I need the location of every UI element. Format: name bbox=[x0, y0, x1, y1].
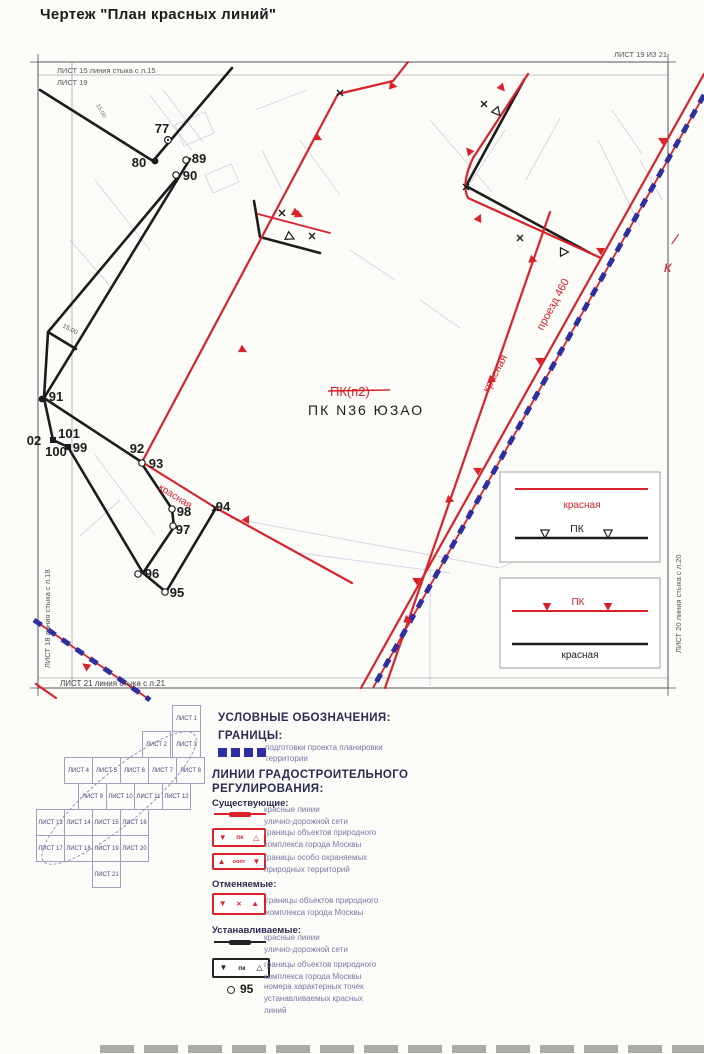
legend-existing-item2-line1: границы особо охраняемых bbox=[264, 852, 367, 863]
sheet-index-cell: ЛИСТ 1 bbox=[172, 705, 201, 732]
legend-borders-item-line1: подготовки проекта планировки bbox=[265, 742, 383, 753]
legend-existing-item2-line2: природных территорий bbox=[264, 864, 350, 875]
legend-established-item2-line2: устанавливаемых красных bbox=[264, 993, 363, 1004]
sheet-reference: ЛИСТ 19 ИЗ 21 bbox=[614, 50, 667, 59]
point-label-92: 92 bbox=[130, 441, 144, 456]
legend-lines-title-2: РЕГУЛИРОВАНИЯ: bbox=[212, 783, 324, 795]
legend-established-item0-line2: улично-дорожной сети bbox=[264, 944, 348, 955]
legend-borders-item-line2: территории bbox=[265, 753, 308, 764]
point-label-93: 93 bbox=[149, 456, 163, 471]
point-label-94: 94 bbox=[216, 499, 231, 514]
triangle-up-icon: ▲ bbox=[251, 900, 259, 908]
sheet-index-cell: ЛИСТ 20 bbox=[120, 835, 149, 862]
edge-letter-k: к bbox=[664, 259, 673, 276]
triangle-up-outline-icon: △ bbox=[256, 964, 262, 972]
red-street-line-icon bbox=[214, 810, 266, 818]
legend-borders-title: ГРАНИЦЫ: bbox=[218, 730, 283, 742]
blue-dash-icon bbox=[244, 748, 253, 757]
oopt-symbol-text: оопт bbox=[233, 859, 246, 865]
point-label-99: 99 bbox=[73, 440, 87, 455]
legend-existing-item0-line2: улично-дорожной сети bbox=[264, 816, 348, 827]
point-label-102: 02 bbox=[27, 433, 41, 448]
legend-existing-item1-line2: комплекса города Москвы bbox=[264, 839, 361, 850]
pk-boundary-red-icon: ▼ пк △ bbox=[212, 828, 266, 847]
point-label-101: 101 bbox=[58, 426, 80, 441]
inset-legend-box-1: красная ПК bbox=[500, 472, 660, 562]
sheet-index-cell: ЛИСТ 4 bbox=[64, 757, 93, 784]
blue-dash-icon bbox=[218, 748, 227, 757]
legend-cancelled-title: Отменяемые: bbox=[212, 879, 276, 890]
inset-box2-black-label: красная bbox=[562, 650, 599, 661]
legend-existing-item1-line1: границы объектов природного bbox=[264, 827, 376, 838]
point-label-95: 95 bbox=[170, 585, 184, 600]
point-label-100: 100 bbox=[45, 444, 67, 459]
oopt-boundary-red-icon: ▲ оопт ▼ bbox=[212, 853, 266, 870]
point-label-80: 80 bbox=[132, 155, 146, 170]
edge-label-left: ЛИСТ 18 линия стыка с л.18 bbox=[43, 569, 52, 668]
edge-label-bottom: ЛИСТ 21 линия стыка с л.21 bbox=[60, 679, 166, 688]
point-number-labels: 77 80 89 90 91 92 93 94 95 96 97 98 99 1… bbox=[27, 121, 231, 600]
triangle-down-icon: ▼ bbox=[252, 858, 260, 866]
cancel-cross-icon: ✕ bbox=[236, 900, 241, 908]
triangle-up-outline-icon: △ bbox=[253, 834, 259, 842]
point-number-sample: 95 bbox=[240, 982, 253, 996]
pk-symbol-text: пк bbox=[238, 965, 245, 972]
legend-established-item0-line1: красные линии bbox=[264, 932, 320, 943]
edge-label-top-2: ЛИСТ 19 bbox=[57, 78, 88, 87]
edge-label-right: ЛИСТ 20 линия стыка с л.20 bbox=[674, 554, 683, 653]
black-street-line-icon bbox=[214, 938, 266, 946]
triangle-down-icon: ▼ bbox=[219, 964, 227, 972]
point-number-circle-icon bbox=[227, 986, 235, 994]
pk-boundary-black-icon: ▼ пк △ bbox=[212, 958, 270, 978]
sheet-index-cell: ЛИСТ 21 bbox=[92, 861, 121, 888]
inset-box1-black-label: ПК bbox=[570, 523, 585, 535]
pk-old-strikethrough bbox=[328, 390, 390, 391]
scan-edge-artifact bbox=[100, 1045, 704, 1053]
legend-lines-title-1: ЛИНИИ ГРАДОСТРОИТЕЛЬНОГО bbox=[212, 769, 408, 781]
legend-existing-item0-line1: красные линии bbox=[264, 804, 320, 815]
dimension-label-top: 15.00 bbox=[94, 103, 107, 120]
point-label-91: 91 bbox=[49, 389, 63, 404]
point-label-89: 89 bbox=[192, 151, 206, 166]
edge-slash-mark: / bbox=[670, 231, 680, 249]
pk-new-label: ПК N36 ЮЗАО bbox=[308, 402, 424, 418]
pk-symbol-text: пк bbox=[236, 834, 243, 841]
point-label-96: 96 bbox=[145, 566, 159, 581]
legend-title: УСЛОВНЫЕ ОБОЗНАЧЕНИЯ: bbox=[218, 712, 391, 724]
point-label-90: 90 bbox=[183, 168, 197, 183]
edge-label-top-1: ЛИСТ 15 линия стыка с л.15 bbox=[57, 66, 156, 75]
point-label-97: 97 bbox=[176, 522, 190, 537]
street-label-proezd-460: проезд 460 bbox=[535, 277, 572, 333]
triangle-down-icon: ▼ bbox=[219, 900, 227, 908]
red-lines-plan-map: 77 80 89 90 91 92 93 94 95 96 97 98 99 1… bbox=[0, 0, 704, 704]
inset-box2-red-label: ПК bbox=[571, 597, 584, 608]
triangle-down-icon: ▼ bbox=[219, 834, 227, 842]
street-label-krasnaya-diag: красная bbox=[480, 353, 510, 395]
dimension-label-left: 15.00 bbox=[61, 323, 79, 337]
legend-established-item2-line3: линий bbox=[264, 1005, 287, 1016]
black-outline-triangle-markers bbox=[285, 107, 568, 257]
point-label-77: 77 bbox=[155, 121, 169, 136]
inset-legend-box-2: ПК красная bbox=[500, 578, 660, 668]
legend-established-item2-line1: номера характерных точек bbox=[264, 981, 364, 992]
legend-cancelled-item0-line2: комплекса города Москвы bbox=[266, 907, 363, 918]
triangle-up-icon: ▲ bbox=[218, 858, 226, 866]
legend-established-item1-line1: границы объектов природного bbox=[264, 959, 376, 970]
blue-dash-icon bbox=[231, 748, 240, 757]
legend-cancelled-item0-line1: границы объектов природного bbox=[266, 895, 378, 906]
pk-boundary-cancelled-icon: ▼ ✕ ▲ bbox=[212, 893, 266, 915]
inset-box1-red-label: красная bbox=[564, 500, 601, 511]
